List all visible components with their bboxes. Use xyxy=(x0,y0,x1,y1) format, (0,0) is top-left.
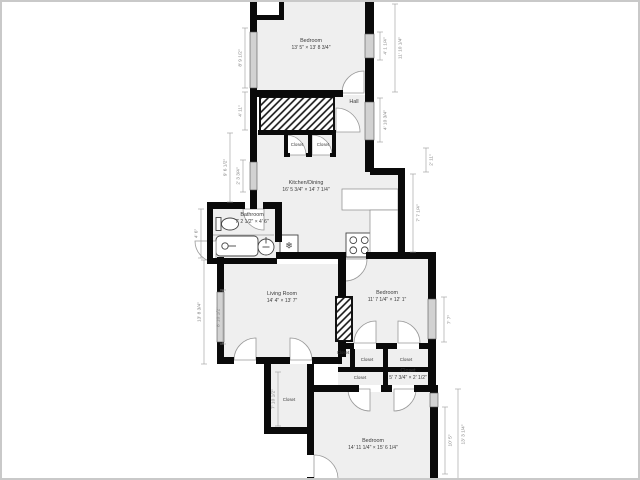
floor-plan-canvas: ❄Bedroom13' 5" × 13' 8 3/4"HallKitchen/D… xyxy=(0,0,640,480)
room-label: Bedroom xyxy=(300,38,322,44)
wall xyxy=(279,2,284,18)
wall xyxy=(284,153,290,157)
wall xyxy=(264,427,314,434)
dimension-label: 4' 6" xyxy=(194,229,200,239)
room-label: Living Room xyxy=(267,291,297,297)
room-dimensions-label: 16' 5 3/4" × 14' 7 1/4" xyxy=(282,187,330,193)
toilet-tank xyxy=(216,218,221,231)
dimension-label: 10' 5" xyxy=(448,434,454,446)
bathtub-icon xyxy=(216,236,258,256)
wall xyxy=(275,202,282,242)
room-label: Closet xyxy=(400,368,416,374)
dimension-label: 13' 8 3/4" xyxy=(197,302,203,322)
stairs-hatch xyxy=(336,297,352,341)
window xyxy=(250,162,257,190)
wall xyxy=(276,252,344,259)
window xyxy=(365,102,374,140)
wall xyxy=(306,153,312,157)
closet-label: Closet xyxy=(400,357,413,362)
wall xyxy=(258,130,336,135)
dimension-label: 9' 6 1/2" xyxy=(223,159,229,177)
wall xyxy=(376,343,397,349)
room-label: Bedroom xyxy=(362,438,384,444)
wall xyxy=(383,372,388,385)
wall xyxy=(314,385,359,392)
wall xyxy=(338,367,435,372)
floor-plan: ❄Bedroom13' 5" × 13' 8 3/4"HallKitchen/D… xyxy=(2,2,640,480)
room-dimensions-label: 7' 2 1/2" × 4' 6" xyxy=(235,219,269,225)
wall xyxy=(330,153,336,157)
room-label: Hall xyxy=(349,99,358,105)
wall xyxy=(350,349,355,367)
dimension-label: 2' 3 3/4" xyxy=(236,167,242,185)
kitchen-counter xyxy=(342,189,398,210)
room-dimensions-label: 13' 5" × 13' 8 3/4" xyxy=(292,45,331,51)
wall xyxy=(383,349,388,367)
window xyxy=(250,32,257,88)
wall xyxy=(250,90,343,97)
window xyxy=(365,34,374,58)
dimension-label: 8' 9 1/2" xyxy=(238,49,244,67)
dimension-label: 7' 7" xyxy=(447,315,453,325)
wall xyxy=(217,357,234,364)
room-label: Bedroom xyxy=(376,290,398,296)
dimension-label: 4' 10 3/4" xyxy=(383,110,389,130)
wall xyxy=(338,252,346,297)
dimension-label: 7' 7 1/4" xyxy=(416,204,422,222)
dimension-label: 13' 3 1/4" xyxy=(461,424,467,444)
window xyxy=(430,393,438,407)
wall xyxy=(264,357,271,434)
room-floor xyxy=(224,264,338,357)
closet-label: Closet xyxy=(317,142,330,147)
room-label: Bathroom xyxy=(240,212,264,218)
wall xyxy=(256,357,290,364)
wall xyxy=(381,385,392,392)
room-dimensions-label: 11' 7 1/4" × 12' 1" xyxy=(368,297,407,303)
wall xyxy=(307,364,314,455)
wall xyxy=(398,168,405,259)
dimension-label: 8' 10 1/2" xyxy=(216,307,222,327)
dimension-label: 7' 10 1/2" xyxy=(271,389,277,409)
wall xyxy=(250,97,257,209)
kitchen-counter xyxy=(370,210,398,256)
dimension-label: 4' 1 1/4" xyxy=(383,37,389,55)
wall xyxy=(365,2,374,172)
window xyxy=(428,299,436,339)
closet-label: Closet xyxy=(291,142,304,147)
dimension-label: 11' 10 1/4" xyxy=(398,37,404,60)
room-dimensions-label: 14' 4" × 13' 7" xyxy=(267,298,298,304)
dimension-label: 2' 11" xyxy=(429,154,435,166)
closet-label: Closet xyxy=(361,357,374,362)
wall xyxy=(312,357,342,364)
closet-label: Closet xyxy=(354,375,367,380)
fridge-snowflake-icon: ❄ xyxy=(285,241,293,251)
closet-label: Closet xyxy=(283,397,296,402)
wall xyxy=(338,343,354,349)
room-label: Kitchen/Dining xyxy=(289,180,324,186)
room-dimensions-label: 14' 11 1/4" × 15' 6 1/4" xyxy=(348,445,398,451)
stairs-hatch xyxy=(260,97,334,133)
closet-label: Closet xyxy=(337,350,350,355)
room-dimensions-label: 5' 7 3/4" × 2' 1/2" xyxy=(389,375,427,381)
wall xyxy=(207,202,213,264)
floor-plan-root: ❄Bedroom13' 5" × 13' 8 3/4"HallKitchen/D… xyxy=(194,2,467,480)
wall xyxy=(366,252,435,259)
cutout xyxy=(257,2,279,15)
dimension-label: 4' 11" xyxy=(238,105,244,117)
